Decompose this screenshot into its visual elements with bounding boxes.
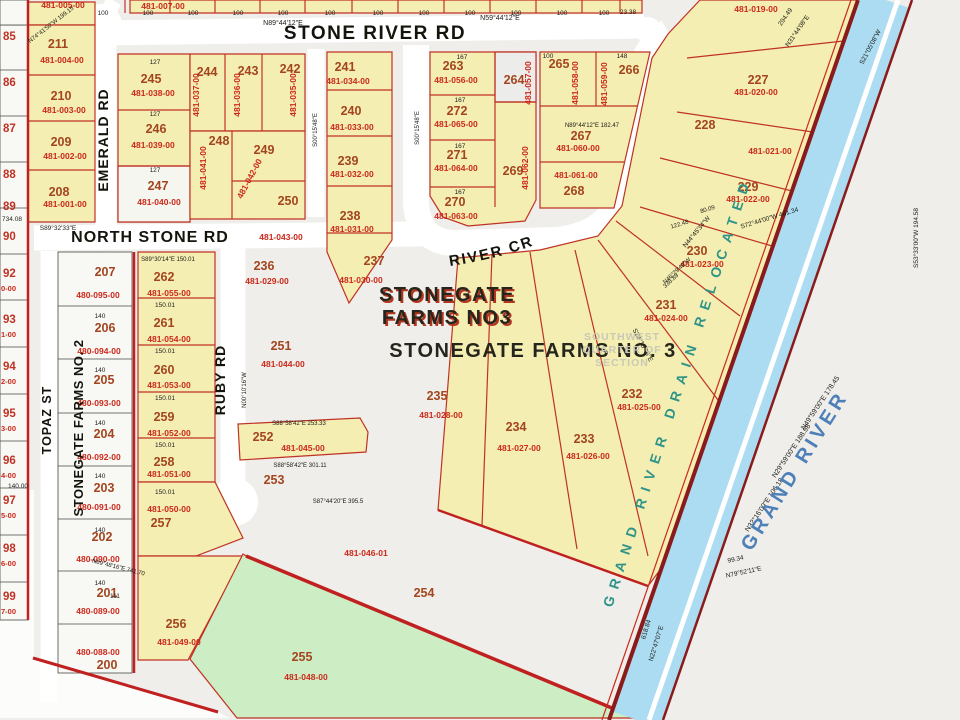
lot-number: 268 (564, 184, 585, 198)
quarter-section-label: QUARTER OF (582, 344, 661, 356)
parcel-id-label: 481-050-00 (147, 504, 191, 514)
dimension-label: 148 (617, 53, 628, 60)
lot-number: 249 (254, 143, 275, 157)
bearing-label: S89°30'14"E 150.01 (141, 257, 195, 263)
road-label-topaz-st: TOPAZ ST (40, 386, 54, 455)
parcel-id-label: 481-021-00 (748, 146, 792, 156)
bearing-label: S88°58'42"E 253.33 (272, 421, 326, 427)
dimension-label: 100 (143, 10, 154, 17)
dimension-label: 167 (457, 54, 468, 61)
lot-number: 267 (571, 129, 592, 143)
dimension-label: 127 (150, 111, 161, 118)
dimension-label: 140 (95, 420, 106, 427)
parcel-id-label: 481-049-00 (157, 637, 201, 647)
dimension-label: 167 (455, 97, 466, 104)
parcel-id-label: 481-057-00 (523, 61, 533, 105)
dimension-label: 100 (465, 10, 476, 17)
bearing-label: N89°44'12"E 182.47 (565, 123, 620, 129)
parcel-id-label: 481-054-00 (147, 334, 191, 344)
lot-number: 272 (447, 104, 468, 118)
lot-number: 205 (94, 373, 115, 387)
edge-lot-number: 95 (3, 408, 16, 420)
parcel-id-label: 481-027-00 (497, 443, 541, 453)
edge-lot-number: 99 (3, 591, 16, 603)
lot-number: 246 (146, 122, 167, 136)
lot-number: 210 (51, 89, 72, 103)
parcel-id-label: 481-041-00 (198, 146, 208, 190)
lot-number: 266 (619, 63, 640, 77)
road-label-stone-river-rd: STONE RIVER RD (284, 23, 466, 44)
lot-number: 252 (253, 430, 274, 444)
lot-number: 264 (504, 73, 525, 87)
edge-lot-number: 90 (3, 231, 16, 243)
dimension-label: 150.01 (155, 348, 175, 355)
lot-number: 261 (154, 316, 175, 330)
dimension-label: 734.08 (2, 216, 22, 223)
lot-number: 200 (97, 658, 118, 672)
lot-number: 203 (94, 481, 115, 495)
dimension-label: 150.01 (155, 442, 175, 449)
lot-number: 263 (443, 59, 464, 73)
parcel-id-label: 481-032-00 (330, 169, 374, 179)
lot-number: 238 (340, 209, 361, 223)
lot-number: 258 (154, 455, 175, 469)
parcel-id-label: 481-061-00 (554, 170, 598, 180)
dimension-label: 100 (188, 10, 199, 17)
dimension-label: 100 (373, 10, 384, 17)
parcel-id-label: 481-059-00 (599, 62, 609, 106)
parcel-id-label: 481-053-00 (147, 380, 191, 390)
lot-number: 248 (209, 134, 230, 148)
parcel-id-label: 481-043-00 (259, 232, 303, 242)
parcel-id-label: 481-029-00 (245, 276, 289, 286)
edge-lot-number: 89 (3, 201, 16, 213)
dimension-label: 111 (110, 593, 120, 600)
edge-lot-number: 97 (3, 495, 16, 507)
lot-number: 255 (292, 650, 313, 664)
parcel-id-label: 481-003-00 (42, 105, 86, 115)
parcel-id-label: 481-064-00 (434, 163, 478, 173)
lot-number: 259 (154, 410, 175, 424)
plat-map-stage: GRAND RIVER CR 211481-004-00210481-003-0… (0, 0, 960, 720)
parcel-id-label: 481-004-00 (40, 55, 84, 65)
lot-number: 236 (254, 259, 275, 273)
parcel-id-label: 481-025-00 (617, 402, 661, 412)
lot-number: 235 (427, 389, 448, 403)
parcel-id-label: 481-026-00 (566, 451, 610, 461)
edge-lot-number: 98 (3, 543, 16, 555)
dimension-label: 100 (543, 53, 554, 60)
bearing-label: S00°15'48"E (415, 111, 421, 145)
lot-number: 260 (154, 363, 175, 377)
lot-number: 233 (574, 432, 595, 446)
lot-number: 254 (414, 586, 435, 600)
dimension-label: 100 (233, 10, 244, 17)
edge-lot-number: 85 (3, 31, 16, 43)
parcel-id-label: 481-058-00 (570, 61, 580, 105)
parcel-247 (118, 166, 190, 222)
lot-number: 206 (95, 321, 116, 335)
lot-number: 270 (445, 195, 466, 209)
lot-number: 241 (335, 60, 356, 74)
quarter-section-label: SECTION (595, 357, 649, 369)
edge-parcel-id: 0-00 (1, 284, 16, 293)
parcel-id-label: 481-019-00 (734, 4, 778, 14)
dimension-label: 100 (98, 10, 109, 17)
parcel-id-label: 481-055-00 (147, 288, 191, 298)
edge-parcel-id: 5-00 (1, 511, 16, 520)
parcel-id-label: 481-063-00 (434, 211, 478, 221)
edge-parcel-id: 7-00 (1, 607, 16, 616)
road-label-north-stone-rd: NORTH STONE RD (71, 229, 229, 246)
parcel-id-label: 480-088-00 (76, 647, 120, 657)
edge-lot-number: 96 (3, 455, 16, 467)
parcel-id-label: 480-089-00 (76, 606, 120, 616)
lot-number: 257 (151, 516, 172, 530)
lot-number: 253 (264, 473, 285, 487)
lot-number: 239 (338, 154, 359, 168)
edge-parcel-id: 4-00 (1, 471, 16, 480)
edge-parcel-id: 6-00 (1, 559, 16, 568)
dimension-label: 140 (95, 527, 106, 534)
lot-number: 256 (166, 617, 187, 631)
lot-number: 232 (622, 387, 643, 401)
road-label-emerald-rd: EMERALD RD (95, 88, 111, 191)
lot-number: 211 (48, 37, 68, 51)
dimension-label: 140 (95, 473, 106, 480)
parcel-id-label: 481-030-00 (339, 275, 383, 285)
lot-number: 234 (506, 420, 527, 434)
parcel-id-label: 481-002-00 (43, 151, 87, 161)
parcel-id-label: 481-033-00 (330, 122, 374, 132)
parcel-id-label: 481-037-00 (191, 73, 201, 117)
lot-number: 204 (94, 427, 115, 441)
dimension-label: 100 (278, 10, 289, 17)
edge-lot-number: 94 (3, 361, 16, 373)
parcel-id-label: 481-035-00 (288, 73, 298, 117)
dimension-label: 140 (95, 367, 106, 374)
parcel-id-label: 481-024-00 (644, 313, 688, 323)
lot-number: 228 (695, 118, 716, 132)
dimension-label: 100 (419, 10, 430, 17)
edge-lot-number: 86 (3, 77, 16, 89)
parcel-id-label: 481-062-00 (520, 146, 530, 190)
parcel-id-label: 481-045-00 (281, 443, 325, 453)
dimension-label: 127 (150, 167, 161, 174)
lot-number: 271 (447, 148, 468, 162)
bearing-label: N00°10'16"W (242, 372, 248, 408)
subdivision-3-label: STONEGATE (379, 284, 515, 306)
dimension-label: 100 (599, 10, 610, 17)
dimension-label: 140 (95, 580, 106, 587)
dimension-label: 100 (325, 10, 336, 17)
dimension-label: 150.01 (155, 302, 175, 309)
parcel-id-label: 481-051-00 (147, 469, 191, 479)
subdivision-2-label: STONEGATE FARMS NO. 2 (71, 340, 86, 517)
bearing-label: S00°15'48"E (313, 113, 319, 147)
edge-parcel-id: 1-00 (1, 330, 16, 339)
road-label-ruby-rd: RUBY RD (212, 345, 228, 416)
parcel-id-label: 480-095-00 (76, 290, 120, 300)
lot-number: 231 (656, 298, 677, 312)
parcel-id-label: 481-034-00 (326, 76, 370, 86)
bearing-label: 23.38 (620, 9, 637, 16)
parcel-id-label: 481-052-00 (147, 428, 191, 438)
dimension-label: 150.01 (155, 489, 175, 496)
parcel-id-label: 481-005-00 (41, 0, 85, 10)
bearing-label: S88°58'42"E 301.11 (273, 463, 327, 469)
bearing-label: S87°44'20"E 395.5 (313, 499, 364, 505)
lot-number: 227 (748, 73, 769, 87)
parcel-id-label: 481-031-00 (330, 224, 374, 234)
lot-number: 230 (687, 244, 708, 258)
subdivision-3-label: FARMS NO3 (382, 307, 512, 329)
edge-lot-number: 87 (3, 123, 16, 135)
quarter-section-label: SOUTHWEST (584, 331, 660, 343)
lot-number: 208 (49, 185, 70, 199)
lot-number: 247 (148, 179, 169, 193)
bearing-label: N59°44'12"E (480, 14, 520, 22)
lot-number: 262 (154, 270, 175, 284)
dimension-label: 140 (95, 313, 106, 320)
edge-lot-number: 92 (3, 268, 16, 280)
road-junction (635, 17, 661, 43)
lot-number: 250 (278, 194, 299, 208)
lot-number: 251 (271, 339, 292, 353)
lot-number: 245 (141, 72, 162, 86)
parcel-id-label: 481-065-00 (434, 119, 478, 129)
parcel-id-label: 481-039-00 (131, 140, 175, 150)
lot-number: 237 (364, 254, 385, 268)
parcel-id-label: 481-046-01 (344, 548, 388, 558)
parcel-id-label: 481-060-00 (556, 143, 600, 153)
plat-map: GRAND RIVER CR 211481-004-00210481-003-0… (0, 0, 960, 720)
lot-number: 240 (341, 104, 362, 118)
dimension-label: 167 (455, 189, 466, 196)
dimension-label: 100 (557, 10, 568, 17)
dimension-label: 127 (150, 59, 161, 66)
parcel-id-label: 481-048-00 (284, 672, 328, 682)
dimension-label: 150.01 (155, 395, 175, 402)
bearing-label: S53°33'00"W 194.58 (912, 208, 920, 268)
dimension-label: 167 (455, 143, 466, 150)
parcel-id-label: 481-056-00 (434, 75, 478, 85)
parcel-id-label: 481-028-00 (419, 410, 463, 420)
edge-lot-number: 93 (3, 314, 16, 326)
parcel-id-label: 481-036-00 (232, 73, 242, 117)
parcel-block-262-258 (138, 252, 215, 482)
parcel-id-label: 481-020-00 (734, 87, 778, 97)
edge-parcel-id: 2-00 (1, 377, 16, 386)
edge-lot-number: 88 (3, 169, 16, 181)
parcel-id-label: 481-001-00 (43, 199, 87, 209)
lot-number: 207 (95, 265, 116, 279)
parcel-id-label: 481-044-00 (261, 359, 305, 369)
parcel-id-label: 481-038-00 (131, 88, 175, 98)
dimension-label: 140.00 (8, 483, 28, 490)
parcel-id-label: 481-040-00 (137, 197, 181, 207)
lot-number: 209 (51, 135, 72, 149)
edge-parcel-id: 3-00 (1, 424, 16, 433)
